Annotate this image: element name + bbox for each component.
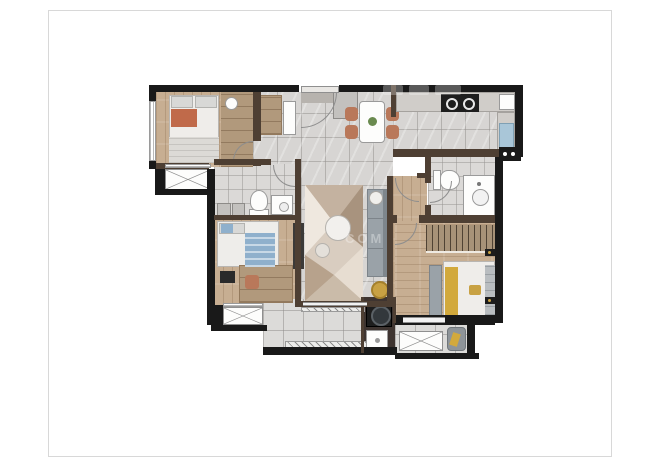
kitchen-cabinet bbox=[499, 94, 515, 110]
wall-bathA-bed2-divider bbox=[214, 215, 296, 220]
kitchen-sink bbox=[499, 123, 514, 148]
pouf bbox=[315, 243, 330, 258]
dining-chair-1 bbox=[345, 107, 358, 121]
utility-shaft bbox=[499, 147, 521, 161]
wall-right-lower bbox=[495, 155, 503, 323]
bedroom1-orange-throw bbox=[171, 109, 197, 127]
wall-bathA-bed2-right bbox=[295, 159, 301, 307]
burner-1 bbox=[446, 98, 458, 110]
master-bench bbox=[429, 265, 442, 317]
bedroom2-monitor bbox=[220, 271, 235, 283]
lounge-towel bbox=[449, 332, 461, 347]
sofa-seam-2 bbox=[368, 248, 384, 249]
floor-plan: COM bbox=[149, 85, 529, 361]
balcony-slider bbox=[303, 302, 367, 306]
wall-sconce-1 bbox=[485, 249, 495, 256]
bathA-sink bbox=[279, 202, 289, 212]
floor-lamp bbox=[369, 191, 383, 205]
dining-chair-4 bbox=[386, 125, 399, 139]
wall-kitchen-bottom bbox=[393, 149, 515, 157]
wall-bathA-top bbox=[214, 159, 271, 165]
bay-window-2 bbox=[223, 307, 263, 325]
bedroom1-duvet bbox=[169, 137, 219, 163]
cooktop bbox=[441, 94, 479, 112]
burner-2 bbox=[463, 98, 475, 110]
bedroom2-blue-duvet bbox=[245, 233, 275, 267]
watermark-glyph-1 bbox=[383, 85, 403, 95]
photo-page: COM bbox=[48, 10, 612, 457]
sofa-seam-1 bbox=[368, 218, 384, 219]
bay2-window-line bbox=[223, 303, 263, 307]
hall-cabinet bbox=[283, 101, 296, 135]
master-bed-runner bbox=[445, 267, 458, 315]
wall-master-top-a bbox=[393, 215, 397, 223]
bathA-vanity bbox=[271, 195, 293, 215]
shaft-dot-1 bbox=[503, 152, 507, 156]
swivel-chair bbox=[325, 215, 351, 241]
bedroom1-window bbox=[149, 101, 156, 161]
balcony-inner-hatch bbox=[301, 307, 365, 312]
wall-bathB-left-a bbox=[425, 157, 431, 183]
lounge-chair bbox=[447, 327, 466, 351]
watermark-glyph-2 bbox=[409, 85, 429, 95]
sconce-light-2 bbox=[488, 299, 491, 302]
wall-bedroom1-right-a bbox=[253, 92, 261, 141]
bedroom2-blue-pillow bbox=[221, 224, 233, 233]
wall-laundry-right bbox=[393, 297, 396, 323]
shaft-dot-2 bbox=[511, 152, 515, 156]
watermark-glyph-3 bbox=[435, 85, 461, 95]
bedroom1-stool bbox=[225, 97, 238, 110]
sconce-light-1 bbox=[488, 251, 491, 254]
bathB-faucet bbox=[477, 182, 481, 186]
entry-door-leaf bbox=[301, 86, 339, 93]
laundry-drain bbox=[375, 338, 380, 343]
master-gold-pillow bbox=[469, 285, 481, 295]
wall-top-right bbox=[339, 85, 523, 92]
wall-master-balcony-right bbox=[467, 323, 475, 357]
master-balcony-bay-window bbox=[399, 331, 443, 351]
screenshot-canvas: COM bbox=[0, 0, 660, 467]
bay1-window-line bbox=[165, 164, 211, 168]
bedroom1-pillow-2 bbox=[195, 96, 217, 108]
bedroom2-chair bbox=[245, 275, 259, 289]
dining-chair-2 bbox=[345, 125, 358, 139]
bathB-sink bbox=[472, 189, 489, 206]
wall-living-corridor bbox=[387, 176, 393, 307]
bay-window-1 bbox=[165, 169, 211, 190]
master-pillows bbox=[485, 265, 495, 315]
wall-balcony-bottom bbox=[263, 347, 397, 355]
wall-bay2-left bbox=[211, 305, 223, 327]
wall-bay1-bottom bbox=[155, 189, 215, 195]
wall-left-lower bbox=[207, 169, 215, 325]
bedroom1-pillow-1 bbox=[171, 96, 193, 108]
bathB-vanity bbox=[463, 175, 495, 219]
wall-master-top-b bbox=[419, 215, 495, 223]
wall-top-bedroom1 bbox=[149, 85, 261, 92]
master-balcony-slider bbox=[403, 317, 445, 323]
dining-plant bbox=[368, 117, 377, 126]
living-rug bbox=[305, 185, 363, 301]
wall-sconce-2 bbox=[485, 297, 495, 304]
washer-drum bbox=[371, 306, 391, 326]
wall-top-entry-left bbox=[261, 85, 299, 92]
wall-bay2-bottom bbox=[211, 325, 267, 331]
bathA-toilet-bowl bbox=[250, 190, 268, 211]
